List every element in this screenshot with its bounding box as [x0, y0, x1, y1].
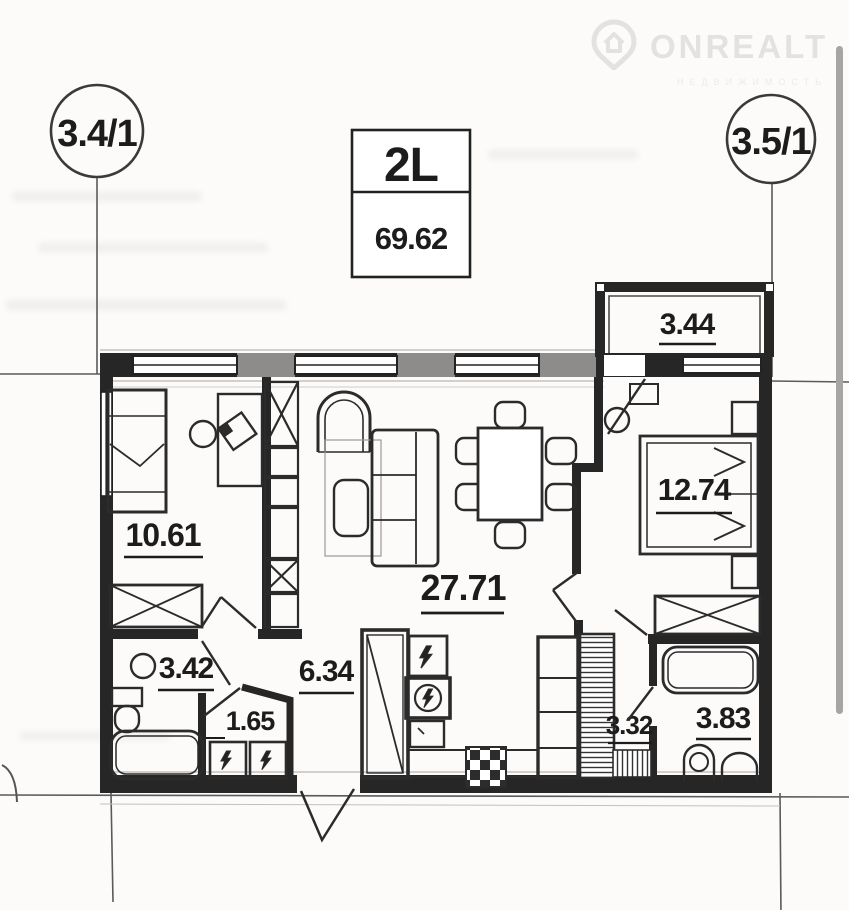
vent-shaft: [580, 634, 614, 778]
toilet-tank: [112, 688, 142, 706]
axis-marker-right-label: 3.5/1: [731, 121, 811, 163]
hallway: 6.34: [299, 655, 355, 693]
room-area-living: 27.71: [420, 567, 506, 608]
unit-type-label: 2L: [384, 139, 438, 192]
storage-room: 1.65: [204, 688, 295, 778]
dining-chair: [546, 484, 576, 510]
scrollbar-thumb[interactable]: [836, 46, 843, 714]
room-area-bathroom1: 3.42: [159, 652, 214, 685]
balcony: 3.44: [595, 282, 774, 434]
adjacent-door-arc: [2, 765, 17, 802]
floor-plan-svg: 3.4/1 3.5/1 2L 69.62: [0, 0, 849, 910]
dining-chair: [495, 522, 525, 548]
comb-hatch: [613, 750, 651, 777]
room-area-hallway: 6.34: [299, 655, 355, 688]
dining-table: [478, 428, 542, 520]
room-area-bathroom2: 3.83: [696, 702, 751, 735]
dining-chair: [546, 438, 576, 464]
sofa: [372, 430, 438, 566]
blanket-fold: [110, 444, 164, 466]
toilet-bowl: [115, 706, 139, 732]
room-area-balcony: 3.44: [660, 308, 716, 341]
bedroom2-door: [553, 572, 578, 624]
bedroom2: 12.74: [605, 384, 760, 635]
floor-plan-page: ONREALT НЕДВИЖИМОСТЬ: [0, 0, 849, 910]
axis-marker-right: 3.5/1: [727, 95, 815, 183]
room-area-bedroom2: 12.74: [658, 472, 732, 507]
nightstand: [732, 556, 758, 588]
axis-marker-left: 3.4/1: [51, 85, 143, 177]
bedroom1-door-leaf: [221, 597, 256, 628]
pillow: [714, 512, 744, 540]
sink-cabinet: [410, 721, 444, 747]
corridor-door-leaf: [615, 610, 647, 635]
entrance-door: [301, 789, 354, 840]
stool: [190, 421, 216, 447]
washbasin: [131, 654, 155, 678]
room-area-bedroom1: 10.61: [125, 517, 200, 553]
kitchen-units: [362, 630, 614, 787]
title-block: 2L 69.62: [352, 130, 470, 277]
desk-chair: [219, 413, 257, 450]
coffee-table: [334, 480, 368, 536]
washbasin: [690, 753, 708, 771]
bathtub: [663, 647, 758, 693]
fridge-cabinet: [538, 637, 578, 778]
stove: [466, 747, 506, 787]
dining-chair: [495, 402, 525, 428]
room-area-storage: 1.65: [226, 706, 276, 736]
desk: [218, 394, 262, 486]
nightstand: [732, 402, 758, 434]
living-room: 27.71: [318, 392, 578, 624]
room-area-corridor: 3.32: [606, 710, 653, 740]
cabinet-column: [538, 637, 578, 778]
balcony-door-opening: [604, 355, 645, 376]
dining-set: [456, 402, 576, 548]
total-area-label: 69.62: [375, 221, 448, 256]
axis-marker-left-label: 3.4/1: [57, 113, 137, 155]
